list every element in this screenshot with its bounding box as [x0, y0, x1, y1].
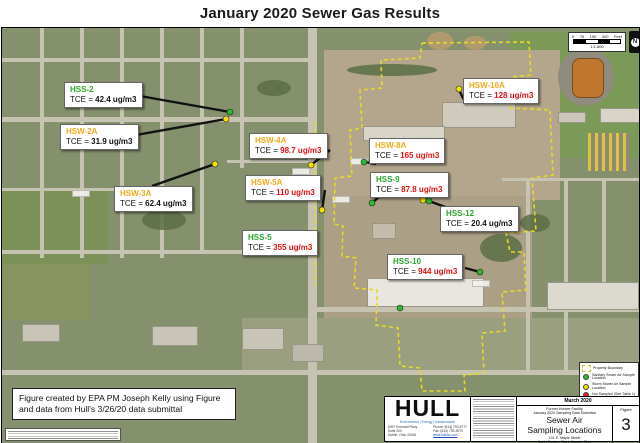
north-arrow-icon: N [629, 31, 640, 53]
street-name-plaque [350, 158, 368, 165]
ball-diamond [464, 36, 486, 50]
road [2, 188, 122, 191]
commercial-building [22, 324, 60, 342]
street-name-plaque [472, 280, 490, 287]
page-title: January 2020 Sewer Gas Results [200, 5, 440, 22]
title-block-panel: HULL Environment | Energy | Infrastructu… [384, 396, 640, 442]
trees [142, 210, 186, 230]
site-id: HSS-2 [70, 85, 137, 95]
site-value: TCE = 944 ug/m3 [393, 267, 457, 277]
yellow-dot-swatch [583, 384, 589, 390]
bus-parking-lot [588, 133, 630, 171]
site-label-hss-2: HSS-2 TCE = 42.4 ug/m3 [64, 82, 143, 108]
site-value: TCE = 87.8 ug/m3 [376, 185, 443, 195]
site-label-hsw-3a: HSW-3A TCE = 62.4 ug/m3 [114, 186, 193, 212]
site-value: TCE = 128 ug/m3 [469, 91, 533, 101]
hull-address: 6397 Emerald Pkwy Suite 200 Dublin, Ohio… [388, 425, 417, 437]
hull-website-link[interactable]: www.hullinc.com [433, 433, 467, 437]
road [502, 178, 640, 181]
micro-notes-box [5, 428, 121, 441]
site-value: TCE = 31.9 ug/m3 [66, 137, 133, 147]
site-address: 101 E. Maple Street North Canton, Stark … [519, 436, 610, 443]
epa-note-box: Figure created by EPA PM Joseph Kelly us… [12, 388, 236, 420]
trees [257, 80, 291, 96]
trees [520, 214, 550, 232]
road [2, 58, 308, 62]
figure-label: Figure [620, 407, 631, 412]
figure-number: 3 [621, 415, 630, 435]
site-label-hsw-16a: HSW-16A TCE = 128 ug/m3 [463, 78, 539, 104]
site-id: HSW-16A [469, 81, 533, 91]
trees [480, 234, 522, 262]
site-id: HSW-8A [375, 141, 439, 151]
legend-item-storm: Storm Sewer Air Sample Location [582, 383, 636, 391]
title-block-date: March 2020 [517, 397, 639, 406]
site-value: TCE = 165 ug/m3 [375, 151, 439, 161]
industrial-building [442, 102, 516, 128]
site-id: HSS-5 [248, 233, 312, 243]
site-value: TCE = 355 ug/m3 [248, 243, 312, 253]
site-value: TCE = 98.7 ug/m3 [255, 146, 322, 156]
aerial-map: HSS-2 TCE = 42.4 ug/m3 HSW-2A TCE = 31.9… [1, 27, 640, 443]
football-field [572, 58, 604, 98]
scale-ratio: 1:1,800 [572, 44, 622, 49]
site-value: TCE = 110 ug/m3 [251, 188, 315, 198]
hull-logo-cell: HULL Environment | Energy | Infrastructu… [385, 397, 471, 441]
legend-item-property-boundary: Property Boundary [582, 365, 636, 372]
retail-building [547, 282, 639, 310]
disclaimer-cell [471, 397, 517, 441]
epa-note-line1: Figure created by EPA PM Joseph Kelly us… [19, 393, 229, 404]
site-label-hss-10: HSS-10 TCE = 944 ug/m3 [387, 254, 463, 280]
road [40, 28, 44, 258]
ball-diamond [427, 32, 453, 50]
school-building [558, 112, 586, 123]
legend-item-sanitary: Sanitary Sewer Air Sample Location [582, 374, 636, 382]
site-label-hss-12: HSS-12 TCE = 20.4 ug/m3 [440, 206, 519, 232]
cemetery-zone [2, 264, 90, 320]
street-name-plaque [292, 168, 310, 175]
site-label-hsw-2a: HSW-2A TCE = 31.9 ug/m3 [60, 124, 139, 150]
road [227, 160, 308, 163]
site-id: HSW-3A [120, 189, 187, 199]
hull-contact: Phone: (614) 793-8777 Fax: (614) 793-907… [433, 425, 467, 437]
commercial-building [152, 326, 198, 346]
commercial-building [292, 344, 324, 362]
site-id: HSW-4A [255, 136, 322, 146]
road [526, 178, 530, 373]
figure-title-bar: January 2020 Sewer Gas Results [0, 0, 640, 27]
site-id: HSW-5A [251, 178, 315, 188]
epa-note-line2: and data from Hull's 3/26/20 data submit… [19, 404, 229, 415]
industrial-building [372, 223, 396, 239]
school-building [600, 108, 640, 123]
illegible-note-text [8, 431, 118, 439]
site-value: TCE = 20.4 ug/m3 [446, 219, 513, 229]
site-id: HSS-10 [393, 257, 457, 267]
trees [347, 64, 437, 76]
site-label-hss-5: HSS-5 TCE = 355 ug/m3 [242, 230, 318, 256]
road [2, 370, 640, 375]
figure-number-cell: Figure 3 [613, 406, 639, 443]
site-id: HSS-12 [446, 209, 513, 219]
site-label-hss-9: HSS-9 TCE = 87.8 ug/m3 [370, 172, 449, 198]
site-id: HSW-2A [66, 127, 133, 137]
road [2, 117, 308, 122]
commercial-building [242, 328, 284, 350]
green-dot-swatch [583, 374, 589, 380]
illegible-disclaimer-text [473, 399, 514, 439]
street-name-plaque [72, 190, 90, 197]
hull-tagline: Environment | Energy | Infrastructure [388, 420, 467, 424]
site-value: TCE = 62.4 ug/m3 [120, 199, 187, 209]
hull-logo: HULL [388, 398, 467, 420]
scale-bar: 075150300Feet 1:1,800 [568, 32, 626, 52]
site-value: TCE = 42.4 ug/m3 [70, 95, 137, 105]
site-label-hsw-5a: HSW-5A TCE = 110 ug/m3 [245, 175, 321, 201]
dashed-line-swatch [582, 365, 591, 372]
figure-page: January 2020 Sewer Gas Results [0, 0, 640, 443]
site-label-hsw-4a: HSW-4A TCE = 98.7 ug/m3 [249, 133, 328, 159]
big-box-store [367, 278, 484, 307]
drawing-title-block: March 2020 Former Hoover Facility Januar… [517, 397, 639, 441]
road [564, 178, 568, 373]
street-name-plaque [332, 196, 350, 203]
site-id: HSS-9 [376, 175, 443, 185]
road [240, 28, 244, 168]
drawing-title: Sewer Air Sampling Locations [519, 416, 610, 436]
site-label-hsw-8a: HSW-8A TCE = 165 ug/m3 [369, 138, 445, 164]
